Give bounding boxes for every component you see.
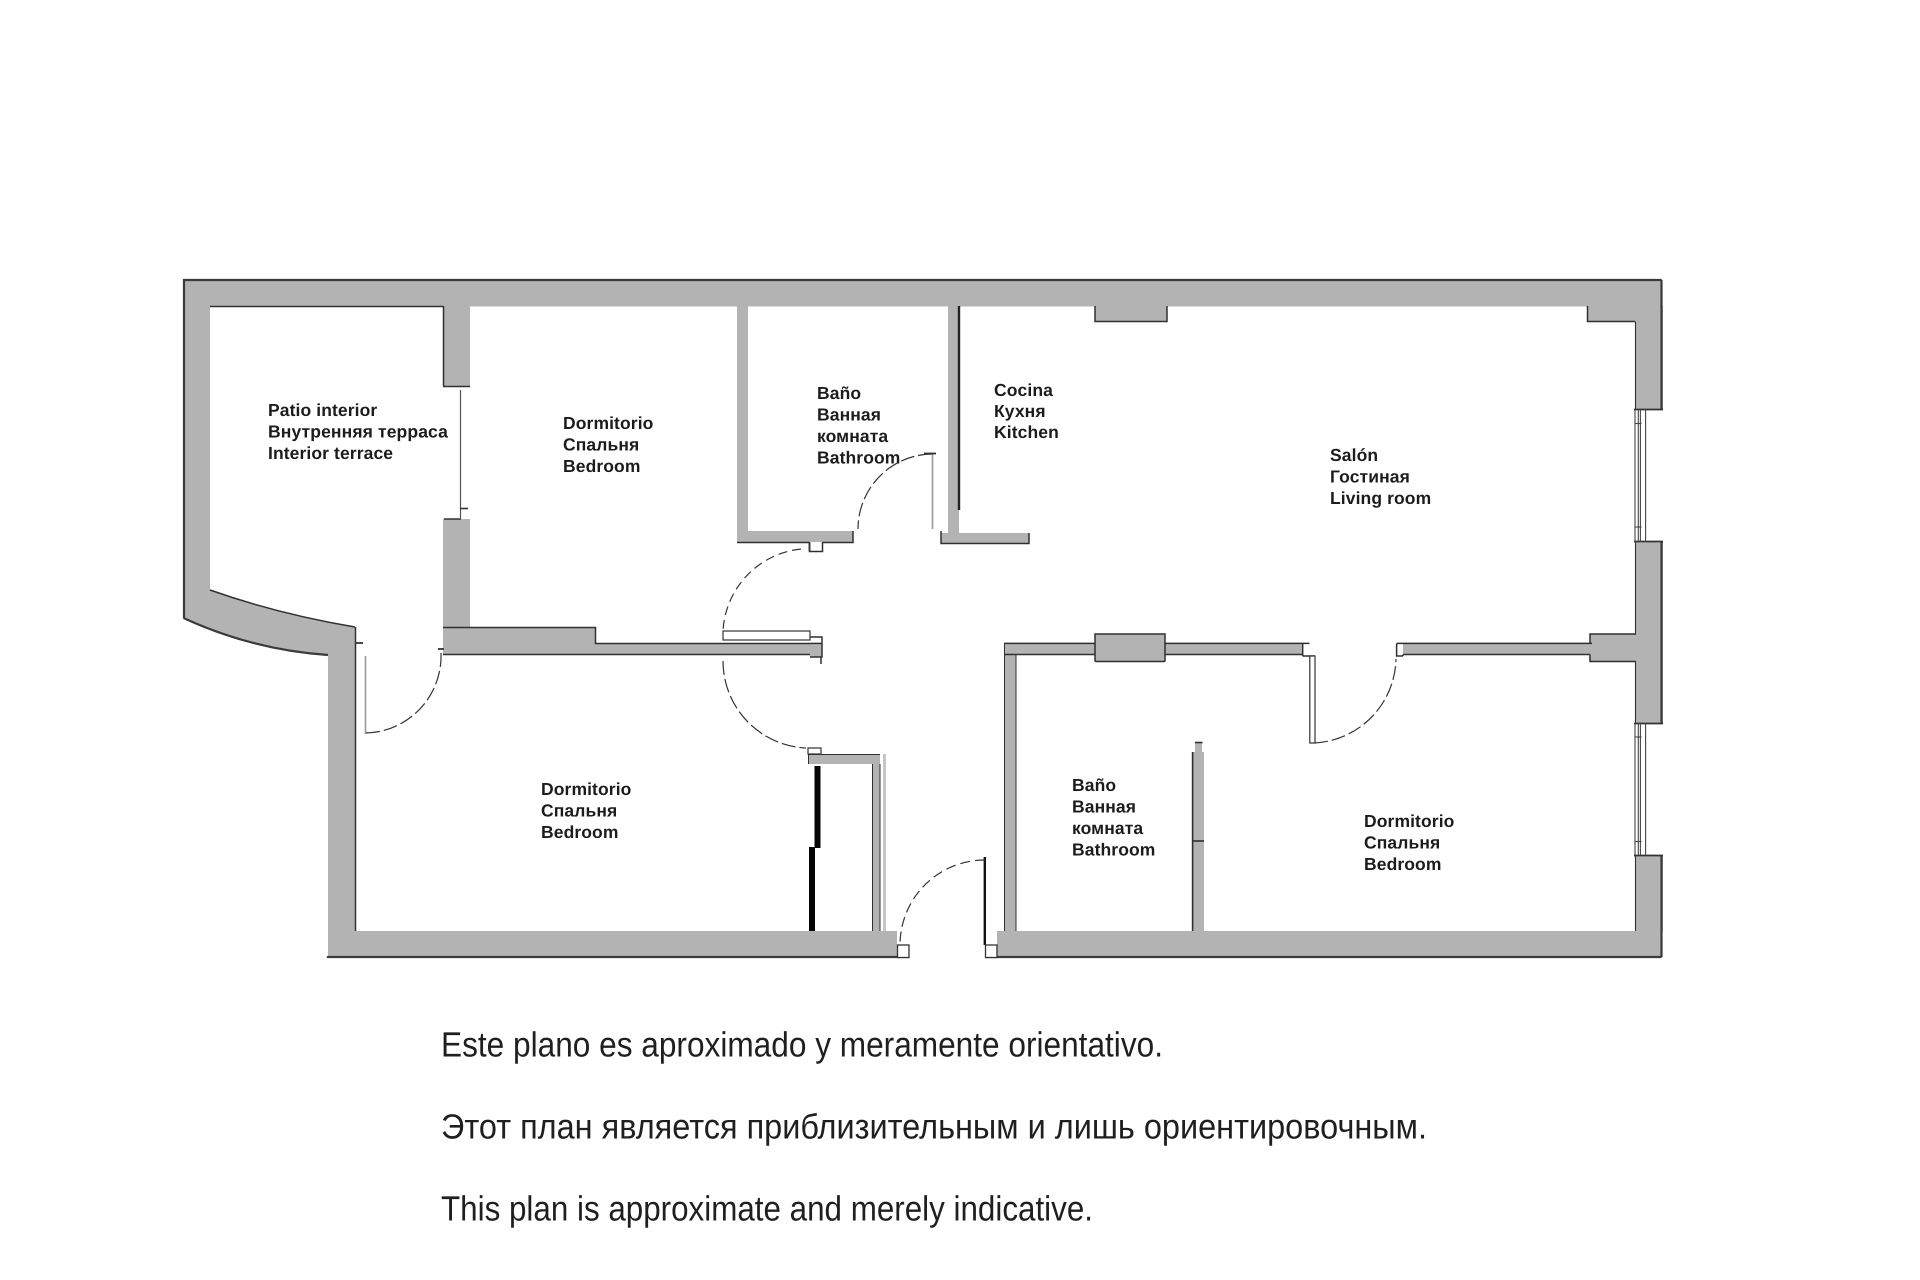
svg-text:Baño: Baño [817, 383, 861, 403]
svg-text:Спальня: Спальня [563, 435, 639, 455]
svg-text:Dormitorio: Dormitorio [563, 413, 653, 433]
svg-text:комната: комната [1072, 818, 1143, 838]
svg-text:Спальня: Спальня [1364, 833, 1440, 853]
svg-text:Este plano es aproximado y mer: Este plano es aproximado y meramente ori… [441, 1026, 1163, 1065]
svg-text:Bedroom: Bedroom [563, 456, 641, 476]
svg-text:Dormitorio: Dormitorio [1364, 811, 1454, 831]
svg-text:Внутренняя терраса: Внутренняя терраса [268, 422, 448, 442]
svg-text:Patio interior: Patio interior [268, 400, 377, 420]
svg-text:Гостиная: Гостиная [1330, 467, 1410, 487]
svg-text:Ванная: Ванная [817, 405, 881, 425]
svg-text:Bathroom: Bathroom [1072, 840, 1155, 860]
svg-text:Кухня: Кухня [994, 401, 1046, 421]
svg-text:Bathroom: Bathroom [817, 448, 900, 468]
svg-text:Bedroom: Bedroom [541, 822, 619, 842]
svg-text:Этот план является приблизител: Этот план является приблизительным и лиш… [441, 1108, 1427, 1147]
svg-text:Cocina: Cocina [994, 380, 1053, 400]
svg-text:Salón: Salón [1330, 445, 1378, 465]
svg-text:Спальня: Спальня [541, 801, 617, 821]
svg-text:Baño: Baño [1072, 775, 1116, 795]
svg-text:Ванная: Ванная [1072, 797, 1136, 817]
svg-text:Dormitorio: Dormitorio [541, 779, 631, 799]
svg-text:комната: комната [817, 426, 888, 446]
svg-text:Kitchen: Kitchen [994, 422, 1059, 442]
svg-text:Bedroom: Bedroom [1364, 854, 1442, 874]
svg-text:Interior terrace: Interior terrace [268, 443, 393, 463]
svg-text:Living room: Living room [1330, 488, 1431, 508]
svg-text:This plan is approximate and m: This plan is approximate and merely indi… [441, 1190, 1093, 1229]
